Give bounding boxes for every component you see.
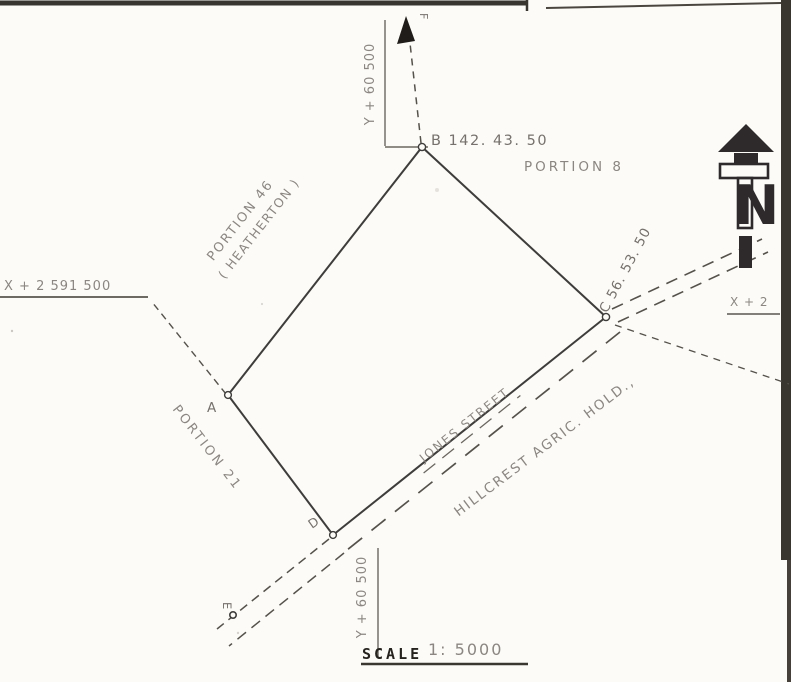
grid-label-y-top: Y + 60 500 [363,43,378,127]
scan-speck [11,330,13,332]
north-symbol-bar [734,153,758,164]
scan-speck [261,303,263,305]
paper-background [0,0,791,682]
parcel-label-portion8: PORTION 8 [524,159,624,175]
beacon-b [418,143,425,150]
survey-plan-drawing: N F B 142. 43. 50 C 56. 53. 50 A D E POR… [0,0,791,682]
bearing-label-b: B 142. 43. 50 [431,133,548,149]
point-label-a: A [207,400,217,416]
scan-speck [435,188,439,192]
grid-label-x-right: X + 2 [730,295,769,309]
scale-value: 1: 5000 [428,640,503,659]
north-symbol-base-dash [739,236,752,268]
beacon-a [225,392,232,399]
right-edge-band-thin [787,560,791,682]
scan-speck [237,632,239,634]
grid-label-y-bottom: Y + 60 500 [355,556,370,640]
grid-label-x-left: X + 2 591 500 [4,279,111,294]
point-label-f: F [417,13,430,19]
beacon-d [330,532,337,539]
survey-plan-sheet: N F B 142. 43. 50 C 56. 53. 50 A D E POR… [0,0,791,682]
scale-label: SCALE [362,645,422,663]
point-label-e: E [220,602,234,609]
beacon-e [230,612,236,618]
north-letter: N [734,174,779,237]
right-edge-band-fade [781,560,787,682]
